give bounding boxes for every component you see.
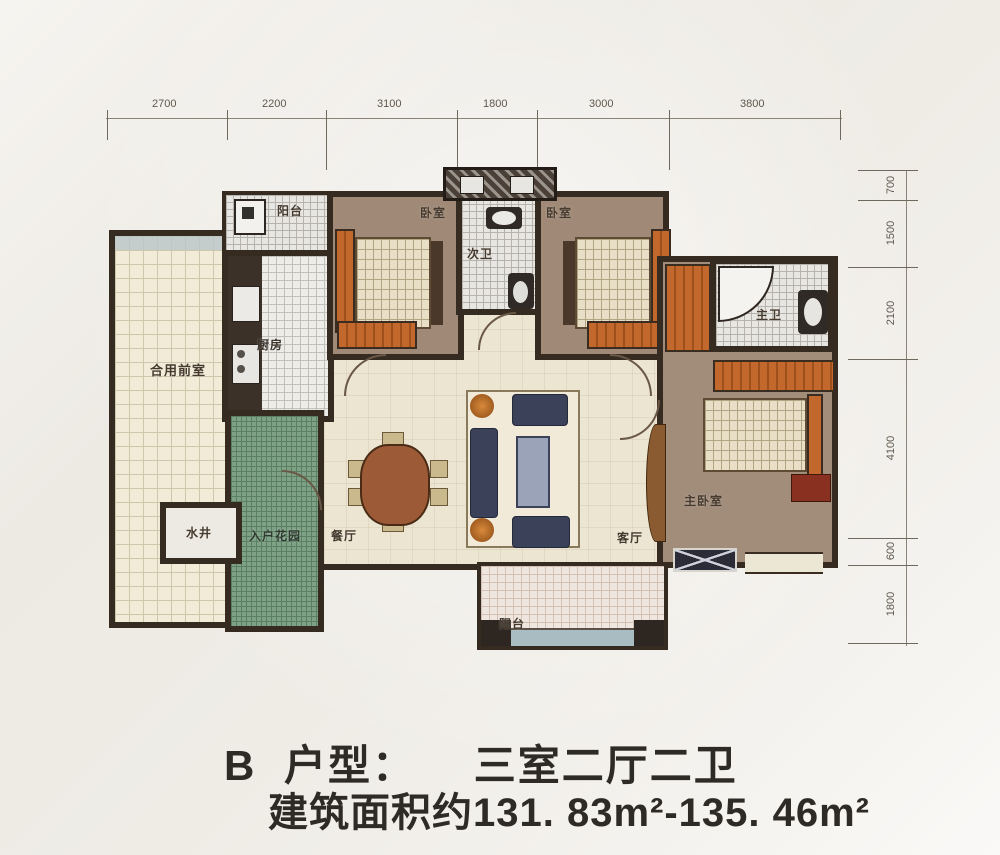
dining-table [360,444,430,526]
bed [575,237,651,329]
room-balcony-top [222,191,334,255]
area-text: 建筑面积约131. 83m²-135. 46m² [268,791,870,835]
washer-drum [242,207,254,219]
wardrobe [337,321,417,349]
entry-stair-structure [443,167,557,201]
dining-chair [430,488,448,506]
dim-top-4: 1800 [483,98,507,110]
tv-cabinet [646,424,666,542]
coffee-table [516,436,550,508]
burner [237,350,245,358]
armchair [512,394,568,426]
label-entry-garden: 入户花园 [249,527,301,544]
label-balcony-top: 阳台 [277,202,303,219]
bed-headboard [335,229,355,333]
kitchen-stove [232,344,260,384]
dim-tick [457,110,458,170]
sofa [470,428,498,518]
burner [237,365,245,373]
dim-line-top [106,118,842,119]
toilet [508,273,534,309]
dim-top-6: 3800 [740,98,764,110]
ac-unit-box [673,548,737,572]
dim-right-5: 600 [885,542,897,560]
dim-right-1: 700 [885,176,897,194]
dim-right-4: 4100 [885,436,897,460]
label-bedroom-left: 卧室 [420,204,446,221]
dim-right-2: 1500 [885,221,897,245]
label-master-bedroom: 主卧室 [684,492,723,509]
sink-basin [492,211,516,225]
label-water-well: 水井 [186,524,212,541]
dim-tick [848,565,918,566]
toilet-bowl [513,281,528,303]
bed-footboard [431,241,443,325]
washing-machine [234,199,266,235]
armchair [512,516,570,548]
dim-right-3: 2100 [885,301,897,325]
dim-tick [848,267,918,268]
bedroom-bench [791,474,831,502]
label-kitchen: 厨房 [257,336,283,353]
dim-top-5: 3000 [589,98,613,110]
dim-tick [227,110,228,140]
master-window [745,552,823,574]
toilet-bowl [804,298,822,326]
label-living-room: 客厅 [617,529,643,546]
dim-tick [848,359,918,360]
master-headboard [807,394,823,476]
balcony-corner [634,620,664,646]
dim-tick [326,110,327,170]
plant [470,394,494,418]
window-ledge [115,236,227,250]
master-wardrobe [713,360,835,392]
room-balcony-bottom [477,562,668,650]
plant [470,518,494,542]
entry-block [510,176,534,194]
vanity-counter [486,207,522,229]
dim-tick [840,110,841,140]
room-shared-front [109,230,233,628]
dim-top-1: 2700 [152,98,176,110]
master-bed [703,398,807,472]
dim-top-3: 3100 [377,98,401,110]
toilet [798,290,828,334]
room-master-bath [710,258,834,352]
dim-tick [858,200,918,201]
label-second-bath: 次卫 [467,245,493,262]
dining-chair [430,460,448,478]
bed [355,237,431,329]
dim-line-right [906,170,907,646]
plan-title-line2: 建筑面积约131. 83m²-135. 46m² [268,780,870,838]
dim-tick [669,110,670,170]
label-shared-front-room: 合用前室 [150,360,206,379]
label-master-bath: 主卫 [756,306,782,323]
kitchen-sink [232,286,260,322]
dim-right-6: 1800 [885,592,897,616]
walkin-wardrobe [665,264,711,352]
dim-tick [107,110,108,140]
dim-top-2: 2200 [262,98,286,110]
label-bedroom-right: 卧室 [546,204,572,221]
wardrobe [587,321,667,349]
dim-tick [537,110,538,170]
dim-tick [858,170,918,171]
floor-plan-photo: 2700 2200 3100 1800 3000 3800 700 1500 2… [0,0,1000,855]
plan-letter: B [224,742,256,789]
entry-block [460,176,484,194]
label-dining-room: 餐厅 [331,527,357,544]
dim-tick [848,643,918,644]
label-balcony-bottom: 阳台 [499,615,525,632]
bed-footboard [563,241,575,325]
dim-tick [848,538,918,539]
